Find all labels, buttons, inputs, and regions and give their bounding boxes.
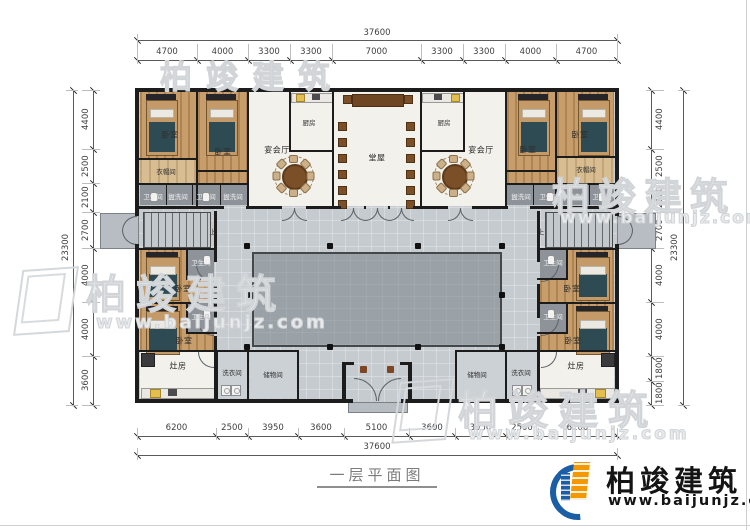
dim-ext <box>197 44 198 64</box>
dim-ext <box>82 405 100 406</box>
wall <box>561 185 562 205</box>
counter-item <box>595 389 606 398</box>
chair <box>406 170 415 179</box>
washing-machine <box>522 385 532 396</box>
room-label-toilet: 卫生间 <box>539 191 559 201</box>
dim-label: 4700 <box>137 47 197 58</box>
dim-label: 3950 <box>248 423 298 434</box>
dim-ext <box>290 44 291 64</box>
dim-label: 1800 <box>654 381 666 405</box>
chair <box>338 170 347 179</box>
dim-label: 4400 <box>654 90 666 149</box>
wall <box>537 332 568 334</box>
dim-ext <box>455 428 456 440</box>
courtyard-column <box>244 243 250 249</box>
courtyard-column <box>415 344 421 350</box>
room-label-toilet: 卫生间 <box>191 311 211 321</box>
entrance-step <box>348 402 408 413</box>
wall <box>306 206 341 209</box>
wall <box>137 350 217 352</box>
wall <box>388 206 390 209</box>
drawing-title: 一层平面图 <box>297 464 457 485</box>
wall <box>401 399 619 403</box>
dim-label: 2500 <box>216 423 248 434</box>
dim-label: 4000 <box>654 248 666 302</box>
room-label-bedroom: 卧室 <box>175 284 192 295</box>
dim-line <box>137 455 617 456</box>
dim-label: 5100 <box>344 423 409 434</box>
dim-label: 3600 <box>409 423 455 434</box>
dim-label-total: 23300 <box>60 90 72 405</box>
wall <box>297 350 299 400</box>
wall <box>186 278 217 280</box>
wall <box>342 362 354 365</box>
wall <box>214 284 217 318</box>
wall <box>196 92 198 206</box>
dim-line <box>137 60 617 61</box>
dim-ext <box>82 356 100 357</box>
room-label-washroom: 盥洗间 <box>567 191 587 201</box>
bed <box>146 311 180 355</box>
dim-label: 2500 <box>654 149 666 183</box>
washing-machine <box>512 385 522 396</box>
dim-ext <box>66 90 78 91</box>
wall <box>186 332 217 334</box>
page-frame-bottom <box>0 525 750 526</box>
dim-label-total: 37600 <box>137 28 617 39</box>
dim-label: 4000 <box>505 47 556 58</box>
dim-label: 4000 <box>654 302 666 356</box>
wall <box>555 92 557 206</box>
wall <box>420 150 465 152</box>
altar-table <box>352 94 404 107</box>
dim-label: 4000 <box>197 47 248 58</box>
wall <box>342 362 346 400</box>
bed <box>578 100 610 156</box>
dim-label: 3300 <box>463 47 505 58</box>
dim-label: 2500 <box>506 423 538 434</box>
dim-ext <box>617 44 618 64</box>
room-label-bedroom: 卧室 <box>565 336 582 347</box>
dim-line <box>73 90 74 405</box>
room-label-bedroom: 卧室 <box>176 336 193 347</box>
room-label-toilet: 卫生间 <box>543 257 563 267</box>
wall <box>537 211 540 262</box>
staircase <box>143 212 211 248</box>
room-label-toilet: 卫生间 <box>196 191 216 201</box>
dim-label: 3300 <box>421 47 463 58</box>
courtyard-column <box>327 344 333 350</box>
dim-label: 2500 <box>80 149 92 183</box>
dim-ext <box>248 44 249 64</box>
chair <box>467 172 475 181</box>
dim-ext <box>506 428 507 440</box>
room-label-kitchen: 厨房 <box>438 117 451 127</box>
dim-ext <box>137 428 138 440</box>
title-underline <box>317 486 437 488</box>
dim-ext <box>332 44 333 64</box>
dim-ext <box>82 90 100 91</box>
wall <box>455 350 539 352</box>
wall <box>332 92 334 206</box>
wall <box>615 88 619 216</box>
wall <box>135 88 619 92</box>
dim-label-total: 37600 <box>137 442 617 453</box>
chair <box>404 95 413 104</box>
dim-ext <box>646 149 664 150</box>
dim-label: 3300 <box>290 47 332 58</box>
chair <box>338 186 347 195</box>
entrance-column <box>360 366 367 373</box>
chair <box>338 138 347 147</box>
page-frame-right <box>746 0 747 530</box>
wall <box>135 399 353 403</box>
wall <box>537 350 619 352</box>
wall <box>463 92 465 152</box>
room-label-bedroom: 卧室 <box>215 147 232 158</box>
wall <box>135 88 139 216</box>
bed <box>146 100 178 156</box>
logo-website: www.baijunjz.com <box>608 493 750 509</box>
courtyard-column <box>499 292 505 298</box>
dim-ext <box>82 212 100 213</box>
dim-ext <box>137 34 138 46</box>
dim-label: 4000 <box>80 248 92 302</box>
dim-ext <box>646 302 664 303</box>
courtyard-column <box>499 344 505 350</box>
wall <box>137 158 197 160</box>
dim-ext <box>678 405 690 406</box>
stairs-up-label: 上 <box>538 226 545 236</box>
dim-ext <box>344 428 345 440</box>
room-label-cloakroom: 衣帽间 <box>576 164 596 174</box>
wall <box>289 150 334 152</box>
courtyard-column <box>415 243 421 249</box>
dim-line <box>683 90 684 405</box>
wall <box>530 206 617 209</box>
chair <box>406 154 415 163</box>
dim-ext <box>646 381 664 382</box>
inner-courtyard <box>252 252 502 347</box>
counter-item <box>578 389 587 396</box>
dim-ext <box>82 149 100 150</box>
dim-label: 1800 <box>654 356 666 381</box>
counter-item <box>296 94 305 102</box>
room-label-storage: 储物间 <box>467 369 487 379</box>
chair <box>449 189 458 197</box>
wall <box>566 304 568 334</box>
dim-ext <box>617 34 618 46</box>
wall <box>566 250 568 280</box>
chair <box>307 172 315 181</box>
wall <box>166 185 167 205</box>
dim-line <box>137 436 617 437</box>
chair <box>433 172 441 181</box>
wall <box>247 350 249 400</box>
stove-block <box>141 353 155 367</box>
wall <box>247 92 249 206</box>
room-label-banquet: 宴会厅 <box>264 145 290 156</box>
wall <box>408 362 412 400</box>
wall <box>400 362 412 365</box>
dim-line <box>137 40 617 41</box>
chair <box>338 154 347 163</box>
dim-ext <box>421 44 422 64</box>
staircase <box>545 212 613 248</box>
chair <box>406 186 415 195</box>
logo-icon <box>548 458 602 512</box>
wall <box>537 284 540 318</box>
courtyard-column <box>244 344 250 350</box>
bed <box>576 257 610 301</box>
wall <box>364 206 366 209</box>
counter-item <box>434 94 442 100</box>
chair <box>449 155 458 163</box>
room-label-toilet: 卫生间 <box>143 191 163 201</box>
wall <box>137 302 217 304</box>
wall <box>505 170 557 172</box>
dim-ext <box>617 428 618 440</box>
courtyard-column <box>327 243 333 249</box>
wall <box>537 248 619 250</box>
chair <box>289 155 298 163</box>
wall <box>472 206 508 209</box>
wall <box>537 278 568 280</box>
wall <box>615 244 619 403</box>
room-label-kitchen: 厨房 <box>303 117 316 127</box>
wall <box>533 185 534 205</box>
dim-ext <box>137 44 138 64</box>
chair <box>343 95 352 104</box>
dim-ext <box>463 44 464 64</box>
dim-ext <box>556 44 557 64</box>
room-label-toilet: 卫生间 <box>543 311 563 321</box>
room-label-bedroom: 卧室 <box>520 145 537 156</box>
wall <box>137 248 217 250</box>
counter-item <box>451 94 460 102</box>
dim-ext <box>646 356 664 357</box>
chair <box>338 122 347 131</box>
dim-ext <box>82 302 100 303</box>
dim-ext <box>82 248 100 249</box>
room-label-bedroom: 卧室 <box>572 130 589 141</box>
room-label-washroom: 盥洗间 <box>168 191 188 201</box>
entrance-column <box>387 366 394 373</box>
counter-item <box>168 389 177 396</box>
room-label-stove: 灶房 <box>568 361 585 372</box>
bed <box>576 311 610 355</box>
room-label-cloakroom: 衣帽间 <box>156 166 176 176</box>
floor-plan-page: 37600 4700 4000 3300 3300 7000 3300 3300… <box>0 0 750 530</box>
courtyard-column <box>499 243 505 249</box>
wall <box>216 350 299 352</box>
wall <box>186 250 188 280</box>
dim-label: 3600 <box>80 356 92 405</box>
wall <box>420 92 422 206</box>
room-label-stove: 灶房 <box>170 361 187 372</box>
washing-machine <box>221 385 231 396</box>
dim-label: 4700 <box>556 47 617 58</box>
dim-label: 6200 <box>538 423 617 434</box>
washing-machine <box>231 385 241 396</box>
wall <box>220 185 221 205</box>
dim-label: 3300 <box>248 47 290 58</box>
room-label-toilet: 卫生间 <box>592 191 612 201</box>
dim-ext <box>409 428 410 440</box>
room-label-bedroom: 卧室 <box>564 284 581 295</box>
wall <box>192 185 193 205</box>
room-label-washroom: 盥洗间 <box>511 191 531 201</box>
wall <box>289 92 291 152</box>
dim-label-total: 23300 <box>669 90 681 405</box>
dim-ext <box>137 448 138 460</box>
wall <box>537 336 540 402</box>
dim-label: 3600 <box>298 423 344 434</box>
dim-ext <box>646 90 664 91</box>
dim-ext <box>66 405 78 406</box>
dim-label: 4400 <box>80 90 92 149</box>
courtyard-column <box>244 292 250 298</box>
wall <box>196 170 249 172</box>
dim-label: 3950 <box>455 423 506 434</box>
dim-ext <box>538 428 539 440</box>
dim-label: 6200 <box>137 423 216 434</box>
wall <box>246 206 282 209</box>
room-label-toilet: 卫生间 <box>191 257 211 267</box>
wall <box>214 211 217 262</box>
dim-ext <box>646 183 664 184</box>
room-label-storage: 储物间 <box>263 369 283 379</box>
wall <box>216 350 218 400</box>
wall <box>137 206 224 209</box>
room-label-main-hall: 堂屋 <box>369 153 386 164</box>
dim-label: 7000 <box>332 47 421 58</box>
chair <box>406 122 415 131</box>
wall <box>589 185 590 205</box>
dim-ext <box>678 90 690 91</box>
chair <box>406 138 415 147</box>
counter-item <box>150 389 161 398</box>
dim-ext <box>82 183 100 184</box>
wall <box>505 350 507 400</box>
dim-ext <box>248 428 249 440</box>
room-label-washroom: 盥洗间 <box>223 191 243 201</box>
stove-block <box>601 353 615 367</box>
room-label-bedroom: 卧室 <box>162 130 179 141</box>
stairs-up-label: 上 <box>210 226 217 236</box>
wall <box>186 304 188 334</box>
counter-item <box>312 94 320 100</box>
wall <box>505 92 507 206</box>
dim-ext <box>216 428 217 440</box>
dim-ext <box>505 44 506 64</box>
room-label-laundry: 洗衣间 <box>511 367 531 377</box>
chair <box>273 172 281 181</box>
dim-label: 2100 <box>654 183 666 212</box>
wall <box>555 156 617 158</box>
dim-label: 4000 <box>80 302 92 356</box>
wall <box>135 244 139 403</box>
dim-ext <box>298 428 299 440</box>
dim-label: 2700 <box>80 212 92 248</box>
dim-ext <box>646 405 664 406</box>
room-label-banquet: 宴会厅 <box>468 145 494 156</box>
chair <box>289 189 298 197</box>
room-label-laundry: 洗衣间 <box>222 367 242 377</box>
wall <box>537 302 619 304</box>
wall <box>455 350 457 400</box>
wall <box>413 206 448 209</box>
